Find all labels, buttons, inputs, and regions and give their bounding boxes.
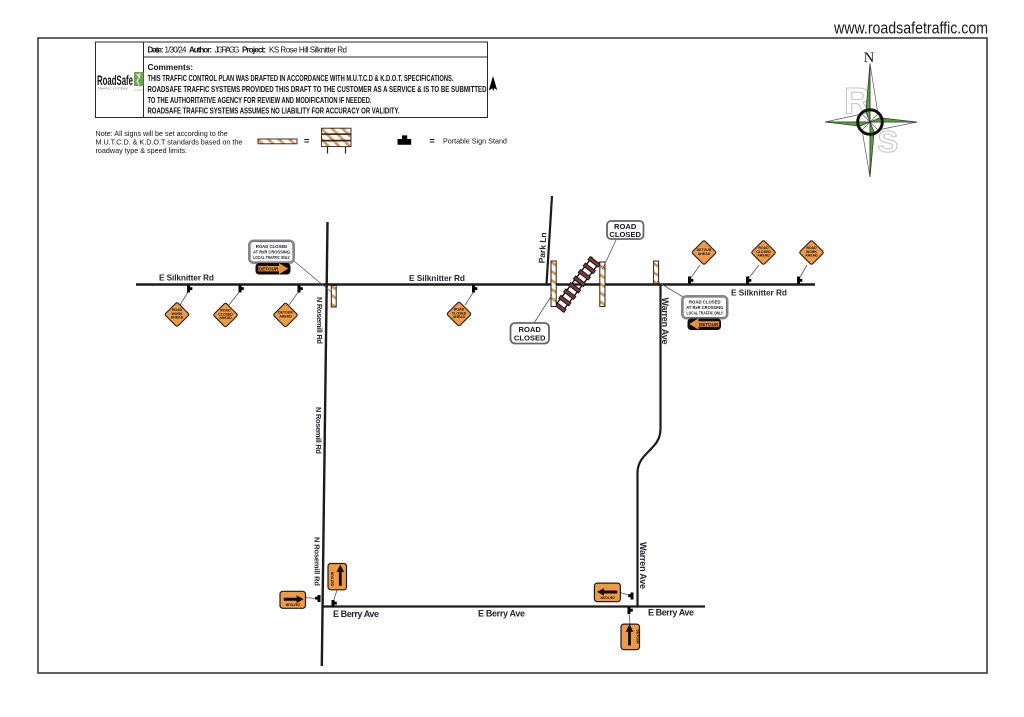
svg-text:AHEAD: AHEAD [279,314,292,318]
svg-text:ROADSAFE TRAFFIC SYSTEMS PROVI: ROADSAFE TRAFFIC SYSTEMS PROVIDED THIS D… [148,84,487,94]
svg-text:DETOUR: DETOUR [330,571,334,586]
svg-text:Warren Ave: Warren Ave [638,542,648,589]
svg-text:roadway type & speed limits.: roadway type & speed limits. [96,146,187,155]
svg-text:N Rosemill Rd: N Rosemill Rd [315,297,324,344]
svg-text:E Berry Ave: E Berry Ave [333,609,379,619]
svg-text:Comments:: Comments: [148,62,194,72]
svg-text:RoadSafe: RoadSafe [97,73,133,88]
svg-text:E Silknitter Rd: E Silknitter Rd [159,273,214,283]
svg-text:Portable Sign Stand: Portable Sign Stand [443,137,507,146]
svg-text:AT RxR CROSSING: AT RxR CROSSING [686,305,723,310]
svg-text:ROAD CLOSED: ROAD CLOSED [689,300,721,305]
svg-text:=: = [304,136,309,146]
svg-text:Author:: Author: [189,46,212,55]
svg-text:1/30/24: 1/30/24 [165,46,188,55]
svg-text:E Berry Ave: E Berry Ave [648,608,694,618]
svg-text:Project:: Project: [242,46,266,55]
svg-text:KS Rose Hill Silknitter Rd: KS Rose Hill Silknitter Rd [269,46,347,55]
svg-text:LOCAL TRAFFIC ONLY: LOCAL TRAFFIC ONLY [687,311,724,316]
svg-text:AHEAD: AHEAD [698,252,711,256]
svg-text:www.roadsafetraffic.com: www.roadsafetraffic.com [833,20,988,38]
svg-text:LOCAL TRAFFIC ONLY: LOCAL TRAFFIC ONLY [253,255,290,260]
svg-text:TRAFFIC SYSTEMS: TRAFFIC SYSTEMS [98,87,128,91]
svg-text:=: = [430,136,435,146]
svg-text:CLOSED: CLOSED [609,230,641,239]
svg-text:DETOUR: DETOUR [285,603,300,607]
svg-text:E Silknitter Rd: E Silknitter Rd [731,288,787,298]
svg-text:AHEAD: AHEAD [219,316,232,320]
svg-text:AHEAD: AHEAD [757,254,770,258]
svg-text:DETOUR: DETOUR [699,322,719,327]
svg-text:AT RxR CROSSING: AT RxR CROSSING [253,250,290,255]
svg-text:ROAD CLOSED: ROAD CLOSED [256,244,288,249]
svg-text:AHEAD: AHEAD [453,315,466,319]
svg-text:ROADSAFE TRAFFIC SYSTEMS ASSUM: ROADSAFE TRAFFIC SYSTEMS ASSUMES NO LIAB… [148,106,400,116]
svg-text:RoadSafe: RoadSafe [134,90,144,92]
svg-text:AHEAD: AHEAD [171,316,184,320]
svg-text:N: N [864,50,875,66]
svg-text:Park Ln: Park Ln [537,232,549,264]
svg-text:N Rosemill Rd: N Rosemill Rd [313,537,322,586]
svg-text:E Silknitter Rd: E Silknitter Rd [409,273,465,283]
svg-text:DETOUR: DETOUR [259,266,279,271]
svg-text:AHEAD: AHEAD [805,254,818,258]
svg-text:DETOUR: DETOUR [600,596,615,600]
svg-text:N Rosemill Rd: N Rosemill Rd [314,407,323,454]
svg-text:CLOSED: CLOSED [514,334,546,343]
svg-text:J.GRAGG: J.GRAGG [215,46,240,55]
svg-text:E Berry Ave: E Berry Ave [478,609,525,619]
svg-text:DETOUR: DETOUR [636,630,640,645]
svg-text:Warren Ave: Warren Ave [660,298,670,345]
svg-text:TO THE AUTHORITATIVE AGENCY FO: TO THE AUTHORITATIVE AGENCY FOR REVIEW A… [148,95,372,105]
svg-text:Date:: Date: [148,46,164,55]
svg-text:THIS TRAFFIC CONTROL PLAN WAS: THIS TRAFFIC CONTROL PLAN WAS DRAFTED IN… [148,73,454,83]
